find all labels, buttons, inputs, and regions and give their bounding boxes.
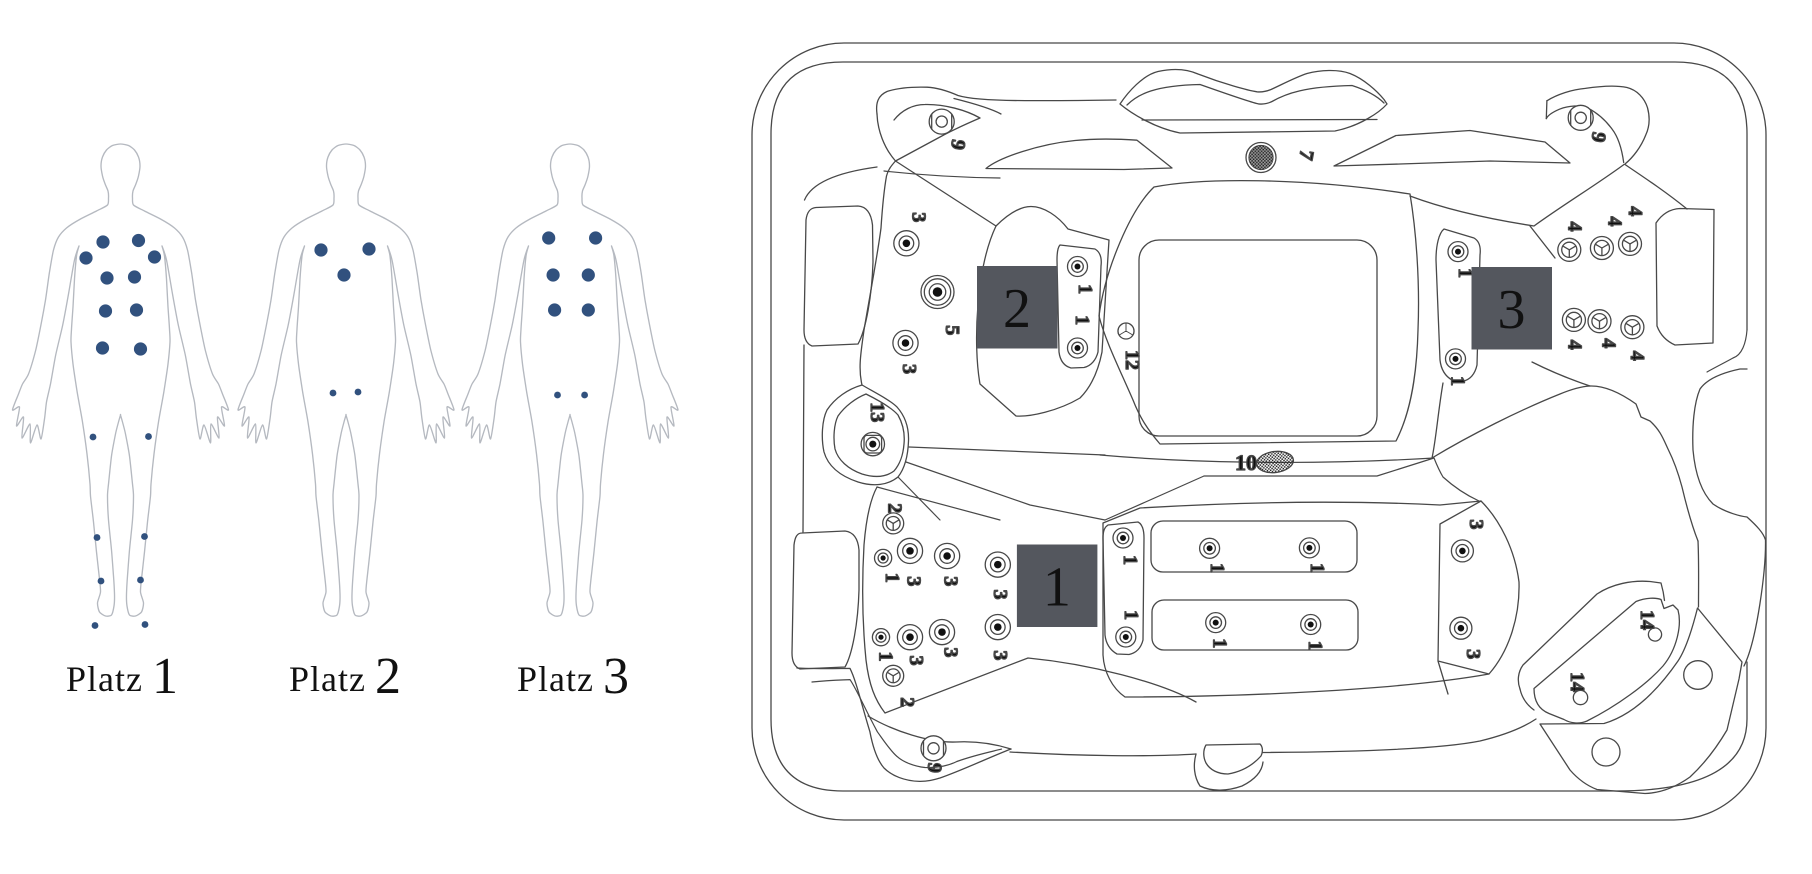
svg-text:1: 1 [1043,557,1071,619]
svg-text:10: 10 [1235,450,1257,475]
svg-text:3: 3 [989,590,1011,600]
svg-text:4: 4 [1564,340,1586,350]
svg-text:2: 2 [884,503,906,513]
svg-text:Platz3: Platz3 [517,648,630,705]
svg-text:3: 3 [989,650,1011,660]
svg-text:3: 3 [940,576,962,586]
svg-text:1: 1 [1074,284,1096,294]
svg-text:3: 3 [898,364,920,374]
svg-text:1: 1 [1306,563,1328,573]
svg-text:1: 1 [1119,555,1141,565]
svg-text:2: 2 [1003,278,1031,340]
svg-text:14: 14 [1636,610,1658,630]
svg-text:12: 12 [1121,350,1143,370]
svg-text:Platz1: Platz1 [66,648,179,705]
svg-text:Platz2: Platz2 [289,648,402,705]
svg-text:4: 4 [1604,216,1626,226]
svg-text:3: 3 [902,576,924,586]
svg-text:9: 9 [923,762,946,774]
svg-text:7: 7 [1294,148,1317,162]
svg-text:1: 1 [1206,563,1228,573]
svg-text:3: 3 [905,656,927,666]
svg-text:1: 1 [1071,315,1093,325]
svg-text:4: 4 [1626,351,1648,361]
svg-text:3: 3 [1462,649,1484,659]
svg-text:1: 1 [1304,641,1326,651]
svg-text:3: 3 [907,212,929,222]
svg-text:1: 1 [875,652,897,662]
svg-text:3: 3 [940,647,962,657]
svg-text:1: 1 [1447,376,1469,386]
svg-text:4: 4 [1598,338,1620,348]
svg-text:13: 13 [866,402,888,422]
svg-text:3: 3 [1498,279,1526,341]
svg-text:9: 9 [1586,130,1609,144]
svg-text:14: 14 [1566,672,1588,692]
svg-text:1: 1 [881,573,903,583]
svg-text:2: 2 [896,697,918,707]
svg-text:5: 5 [941,325,963,335]
svg-text:9: 9 [946,138,969,152]
svg-text:1: 1 [1209,638,1231,648]
svg-text:1: 1 [1120,610,1142,620]
svg-text:4: 4 [1563,222,1585,232]
svg-text:3: 3 [1465,519,1487,529]
svg-text:4: 4 [1624,206,1646,216]
